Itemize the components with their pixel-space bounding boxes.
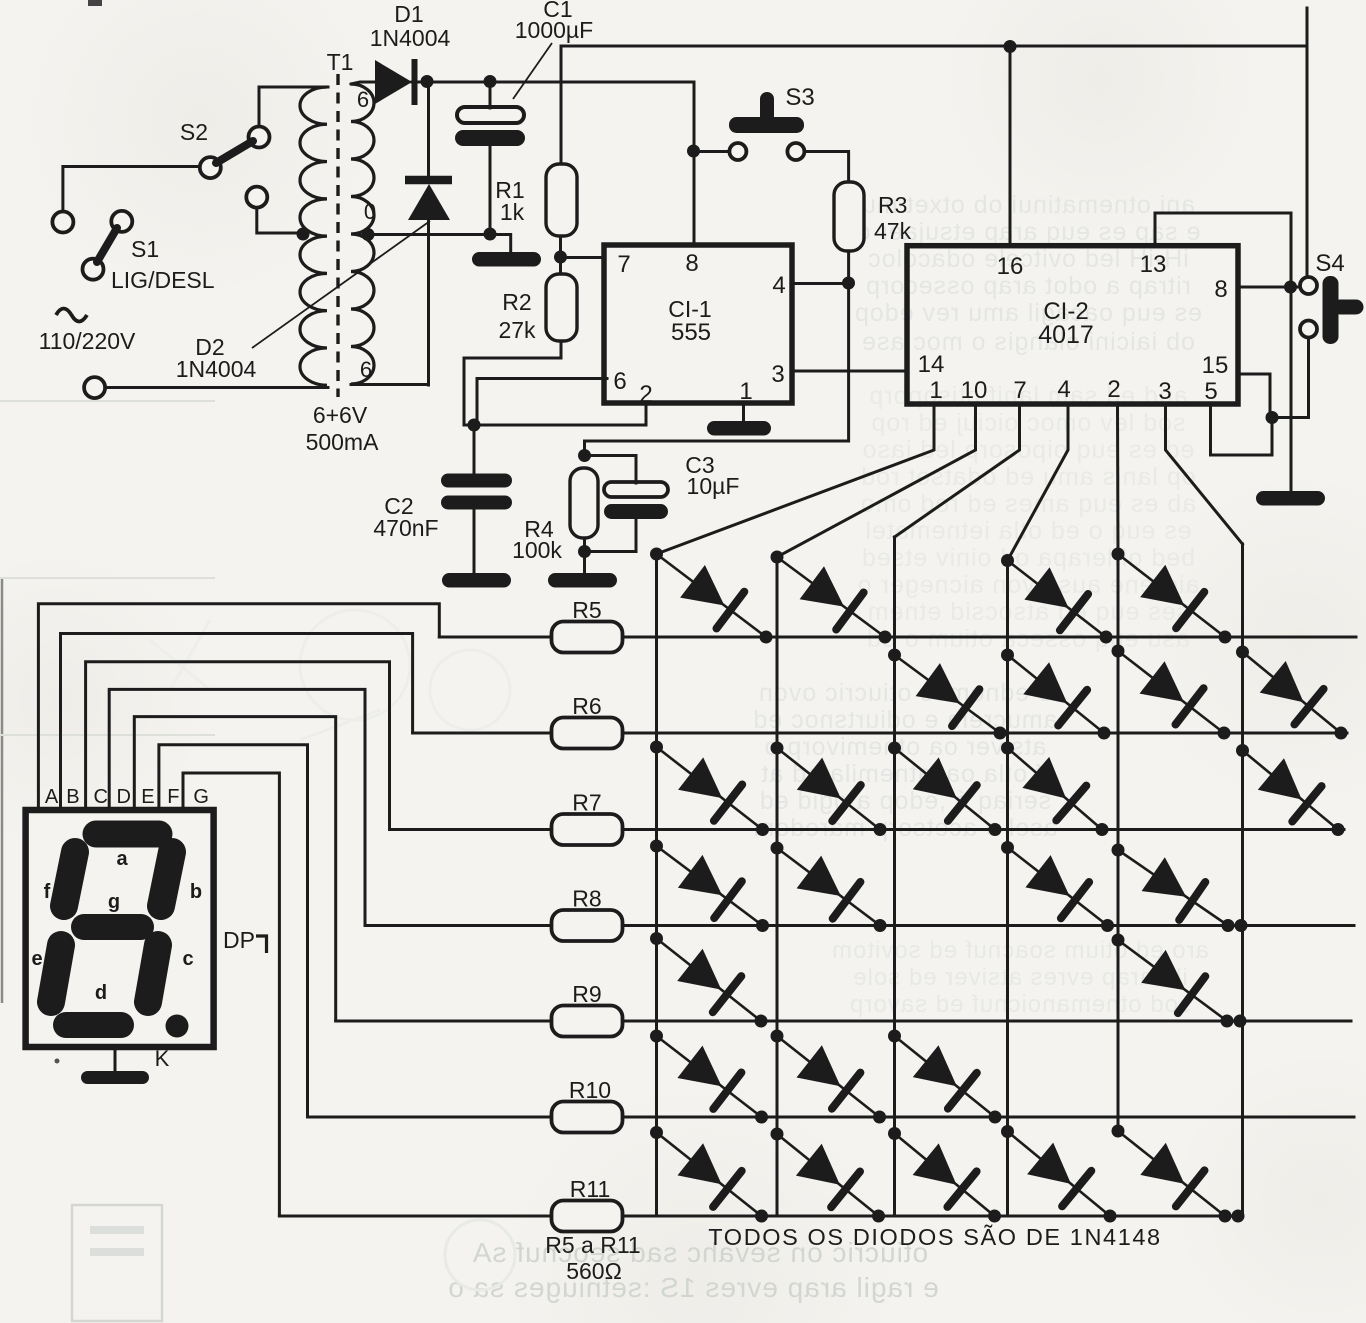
svg-text:4: 4 <box>1057 376 1070 403</box>
svg-text:5: 5 <box>1204 378 1217 405</box>
svg-text:TODOS OS DIODOS SÃO DE 1N4148: TODOS OS DIODOS SÃO DE 1N4148 <box>708 1224 1161 1250</box>
svg-text:DP: DP <box>223 927 255 953</box>
svg-text:500mA: 500mA <box>306 429 380 455</box>
svg-text:1N4004: 1N4004 <box>176 356 257 382</box>
svg-text:B: B <box>66 786 79 808</box>
svg-text:ile arap evres atsiver ed sole: ile arap evres atsiver ed sole <box>852 964 1187 991</box>
svg-text:c: c <box>182 948 193 970</box>
svg-text:g: g <box>108 891 120 913</box>
svg-text:110/220V: 110/220V <box>39 328 136 354</box>
svg-text:asu euq osseca otium o ed: asu euq osseca otium o ed <box>866 625 1190 653</box>
svg-text:8: 8 <box>1214 276 1227 303</box>
svg-text:D1: D1 <box>394 1 423 27</box>
svg-text:aro ed otium soacnuf ed sovito: aro ed otium soacnuf ed sovitom <box>831 937 1209 964</box>
svg-text:100k: 100k <box>512 537 562 563</box>
svg-text:10µF: 10µF <box>687 473 740 499</box>
svg-text:R5: R5 <box>572 597 601 623</box>
svg-text:3: 3 <box>1158 378 1171 405</box>
svg-text:A: A <box>45 786 59 808</box>
svg-text:R8: R8 <box>572 886 601 912</box>
svg-text:bed ohlerapa od oiniv etsed: bed ohlerapa od oiniv etsed <box>861 544 1195 572</box>
svg-text:555: 555 <box>671 319 711 346</box>
svg-text:6+6V: 6+6V <box>313 402 368 428</box>
svg-text:6: 6 <box>613 368 626 395</box>
svg-text:ob iaicini olangis o moc ase: ob iaicini olangis o moc ase <box>861 328 1195 356</box>
svg-text:R10: R10 <box>569 1077 611 1103</box>
svg-text:27k: 27k <box>498 317 536 343</box>
svg-text:ab es euq ames ed rod omo: ab es euq ames ed rod omo <box>860 490 1196 518</box>
svg-text:15: 15 <box>1202 352 1229 379</box>
svg-text:sod otnemanoicnuf ed savorp: sod otnemanoicnuf ed savorp <box>849 991 1191 1018</box>
svg-text:D: D <box>116 786 130 808</box>
svg-text:e: e <box>31 948 42 970</box>
svg-text:6: 6 <box>357 87 369 112</box>
svg-text:2: 2 <box>1107 376 1120 403</box>
svg-text:S1: S1 <box>131 236 159 262</box>
svg-text:0: 0 <box>364 199 376 224</box>
svg-text:13: 13 <box>1140 251 1167 278</box>
svg-text:ani otnematinui ob otxet mu: ani otnematinui ob otxet mu <box>861 191 1195 219</box>
svg-text:K: K <box>155 1046 170 1071</box>
svg-text:C: C <box>93 786 107 808</box>
svg-text:1000µF: 1000µF <box>515 17 593 43</box>
svg-text:1: 1 <box>739 378 752 405</box>
svg-text:14: 14 <box>918 351 945 378</box>
svg-text:47k: 47k <box>874 218 912 244</box>
svg-text:sod lev omoc oiciuj ed rop: sod lev omoc oiciuj ed rop <box>870 409 1185 437</box>
svg-text:R6: R6 <box>572 693 601 719</box>
svg-text:R11: R11 <box>570 1176 611 1202</box>
svg-text:16: 16 <box>997 253 1024 280</box>
svg-text:R3: R3 <box>878 192 907 218</box>
svg-text:1N4004: 1N4004 <box>370 25 451 51</box>
svg-text:LIG/DESL: LIG/DESL <box>111 267 215 293</box>
svg-text:1: 1 <box>929 377 942 404</box>
svg-text:e ragil arap evres 1S :setniug: e ragil arap evres 1S :setniuges sa o <box>447 1272 938 1303</box>
svg-text:R9: R9 <box>572 981 601 1007</box>
svg-text:2: 2 <box>639 381 652 408</box>
svg-text:amucrem e odiurtsnoc ed: amucrem e odiurtsnoc ed <box>752 706 1057 734</box>
svg-text:E: E <box>141 786 154 808</box>
svg-text:R2: R2 <box>502 289 531 315</box>
svg-text:6: 6 <box>360 357 372 382</box>
svg-text:7: 7 <box>617 251 630 278</box>
svg-text:ses euq ed atsocsid etnem: ses euq ed atsocsid etnem <box>867 598 1189 626</box>
svg-text:3: 3 <box>771 361 784 388</box>
svg-text:S3: S3 <box>785 84 814 111</box>
svg-text:10: 10 <box>961 377 988 404</box>
svg-text:8: 8 <box>685 250 698 277</box>
svg-text:b: b <box>190 881 202 903</box>
svg-text:S2: S2 <box>180 119 208 145</box>
svg-text:a: a <box>116 848 128 870</box>
svg-text:G: G <box>193 786 209 808</box>
svg-text:1k: 1k <box>500 199 525 225</box>
svg-text:F: F <box>167 786 179 808</box>
svg-text:560Ω: 560Ω <box>566 1258 622 1284</box>
svg-text:T1: T1 <box>327 49 354 75</box>
svg-text:f: f <box>44 881 51 903</box>
svg-text:4017: 4017 <box>1038 321 1094 349</box>
svg-text:op lanis amu ed odatset rod: op lanis amu ed odatset rod <box>860 463 1196 491</box>
svg-text:R5 a R11: R5 a R11 <box>545 1232 640 1258</box>
svg-text:7: 7 <box>1013 377 1026 404</box>
svg-text:S4: S4 <box>1315 250 1344 277</box>
svg-text:d: d <box>95 982 107 1004</box>
svg-text:470nF: 470nF <box>373 515 438 541</box>
svg-text:4: 4 <box>772 272 785 299</box>
svg-text:R7: R7 <box>572 790 601 816</box>
